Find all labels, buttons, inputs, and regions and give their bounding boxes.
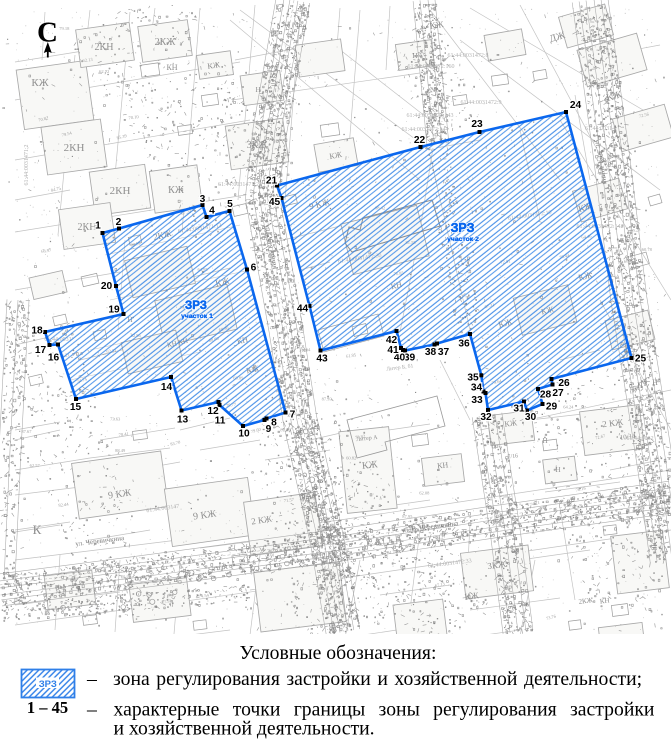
svg-text:38: 38 xyxy=(425,347,437,358)
svg-text:КЖ: КЖ xyxy=(207,60,221,71)
svg-text:18: 18 xyxy=(31,326,43,337)
svg-text:–: – xyxy=(86,699,97,721)
svg-text:61:44:0031471:2: 61:44:0031471:2 xyxy=(24,144,30,185)
svg-text:3КЖ: 3КЖ xyxy=(247,140,268,151)
svg-text:88.49: 88.49 xyxy=(115,448,126,453)
svg-text:1: 1 xyxy=(95,221,101,232)
svg-text:11: 11 xyxy=(215,416,226,427)
svg-text:участок 1: участок 1 xyxy=(181,313,213,320)
svg-text:61:44:0031472:160: 61:44:0031472:160 xyxy=(407,64,454,70)
svg-text:25: 25 xyxy=(635,354,647,365)
svg-text:81.80: 81.80 xyxy=(280,428,291,433)
svg-text:62.08: 62.08 xyxy=(419,491,430,496)
svg-text:КЖ: КЖ xyxy=(464,590,480,602)
svg-text:28: 28 xyxy=(540,390,552,401)
svg-text:8К: 8К xyxy=(650,541,659,551)
svg-text:и хозяйственной деятельности.: и хозяйственной деятельности. xyxy=(114,718,375,740)
svg-text:45: 45 xyxy=(269,197,281,208)
svg-text:зона регулирования застройки и: зона регулирования застройки и хозяйстве… xyxy=(113,668,642,690)
svg-text:10: 10 xyxy=(238,429,250,440)
svg-text:37: 37 xyxy=(438,347,450,358)
svg-text:Н: Н xyxy=(255,86,260,94)
svg-text:62.72: 62.72 xyxy=(99,69,109,74)
svg-text:61:44:0031472:143: 61:44:0031472:143 xyxy=(406,113,453,119)
svg-text:–: – xyxy=(86,668,97,690)
svg-text:23: 23 xyxy=(471,119,483,130)
svg-text:17: 17 xyxy=(35,345,47,356)
svg-text:32: 32 xyxy=(480,412,492,423)
svg-text:13: 13 xyxy=(177,415,189,426)
svg-text:61:44:0031472:144: 61:44:0031472:144 xyxy=(401,127,448,133)
svg-text:КЖ: КЖ xyxy=(429,19,445,31)
svg-text:участок 2: участок 2 xyxy=(447,236,479,243)
svg-text:61:44:0032: 61:44:0032 xyxy=(626,436,653,442)
svg-text:87.67: 87.67 xyxy=(21,429,32,434)
svg-text:Н: Н xyxy=(555,466,560,474)
svg-text:39: 39 xyxy=(404,353,416,364)
svg-text:87.95: 87.95 xyxy=(402,514,413,519)
svg-text:30: 30 xyxy=(525,412,537,423)
svg-text:36: 36 xyxy=(458,339,470,350)
svg-text:33: 33 xyxy=(471,395,483,406)
svg-text:21: 21 xyxy=(266,176,278,187)
svg-text:34: 34 xyxy=(471,383,483,394)
svg-text:14: 14 xyxy=(161,382,173,393)
svg-text:5: 5 xyxy=(227,199,233,210)
svg-text:61:44:0031471:28: 61:44:0031471:28 xyxy=(218,182,262,188)
svg-text:24: 24 xyxy=(570,100,582,111)
svg-text:КН: КН xyxy=(437,460,449,470)
svg-text:8: 8 xyxy=(271,418,277,429)
svg-text:ЗРЗ: ЗРЗ xyxy=(185,300,207,312)
svg-text:16: 16 xyxy=(48,353,60,364)
svg-text:79.18: 79.18 xyxy=(59,26,70,31)
svg-text:62.57: 62.57 xyxy=(30,463,41,468)
svg-text:Н: Н xyxy=(652,378,658,387)
svg-text:7: 7 xyxy=(290,410,296,421)
svg-text:2КН: 2КН xyxy=(64,142,85,154)
svg-text:27: 27 xyxy=(552,388,564,399)
svg-text:КЖ: КЖ xyxy=(31,77,48,89)
svg-text:60.78: 60.78 xyxy=(642,247,653,252)
svg-text:29: 29 xyxy=(546,402,558,413)
svg-text:61:44:0031472:8: 61:44:0031472:8 xyxy=(447,53,488,59)
svg-text:60.82: 60.82 xyxy=(346,455,356,460)
svg-text:35: 35 xyxy=(467,373,479,384)
svg-text:Н: Н xyxy=(637,381,643,390)
svg-text:6: 6 xyxy=(251,263,257,274)
svg-text:КЖ: КЖ xyxy=(168,185,184,196)
svg-text:2КН: 2КН xyxy=(95,42,114,53)
svg-text:43: 43 xyxy=(316,354,328,365)
svg-text:87.93: 87.93 xyxy=(322,396,333,401)
svg-text:2КН: 2КН xyxy=(110,185,131,197)
svg-text:20: 20 xyxy=(101,281,113,292)
svg-text:31: 31 xyxy=(513,404,525,415)
svg-text:44: 44 xyxy=(297,304,309,315)
svg-text:КЖ: КЖ xyxy=(504,418,518,429)
svg-text:1 – 45: 1 – 45 xyxy=(27,698,68,717)
svg-text:73.63: 73.63 xyxy=(110,417,121,422)
svg-text:2КЖ: 2КЖ xyxy=(155,37,176,48)
svg-text:12: 12 xyxy=(207,406,219,417)
svg-text:9: 9 xyxy=(266,424,272,435)
svg-text:Н: Н xyxy=(542,437,547,445)
svg-text:4: 4 xyxy=(209,206,215,217)
svg-text:64.24: 64.24 xyxy=(563,405,574,410)
svg-text:К: К xyxy=(33,522,42,537)
svg-text:ЗРЗ: ЗРЗ xyxy=(39,679,57,690)
svg-text:22: 22 xyxy=(414,135,426,146)
svg-text:61:44:0031472:9: 61:44:0031472:9 xyxy=(460,100,501,106)
svg-text:2КН: 2КН xyxy=(78,222,97,233)
svg-text:Н: Н xyxy=(412,52,417,60)
svg-text:Условные обозначения:: Условные обозначения: xyxy=(240,642,437,664)
svg-text:78.01: 78.01 xyxy=(265,553,275,558)
svg-text:61:44:00314: 61:44:00314 xyxy=(585,126,615,132)
svg-text:2: 2 xyxy=(116,217,122,228)
svg-text:КН: КН xyxy=(166,63,177,72)
svg-text:42: 42 xyxy=(386,335,398,346)
svg-text:КН: КН xyxy=(599,596,610,605)
svg-text:15: 15 xyxy=(70,402,82,413)
svg-text:41: 41 xyxy=(387,345,399,356)
svg-text:19: 19 xyxy=(108,305,120,316)
svg-text:3: 3 xyxy=(200,194,206,205)
svg-text:КЖ: КЖ xyxy=(361,459,378,472)
svg-text:ЗРЗ: ЗРЗ xyxy=(451,221,475,235)
